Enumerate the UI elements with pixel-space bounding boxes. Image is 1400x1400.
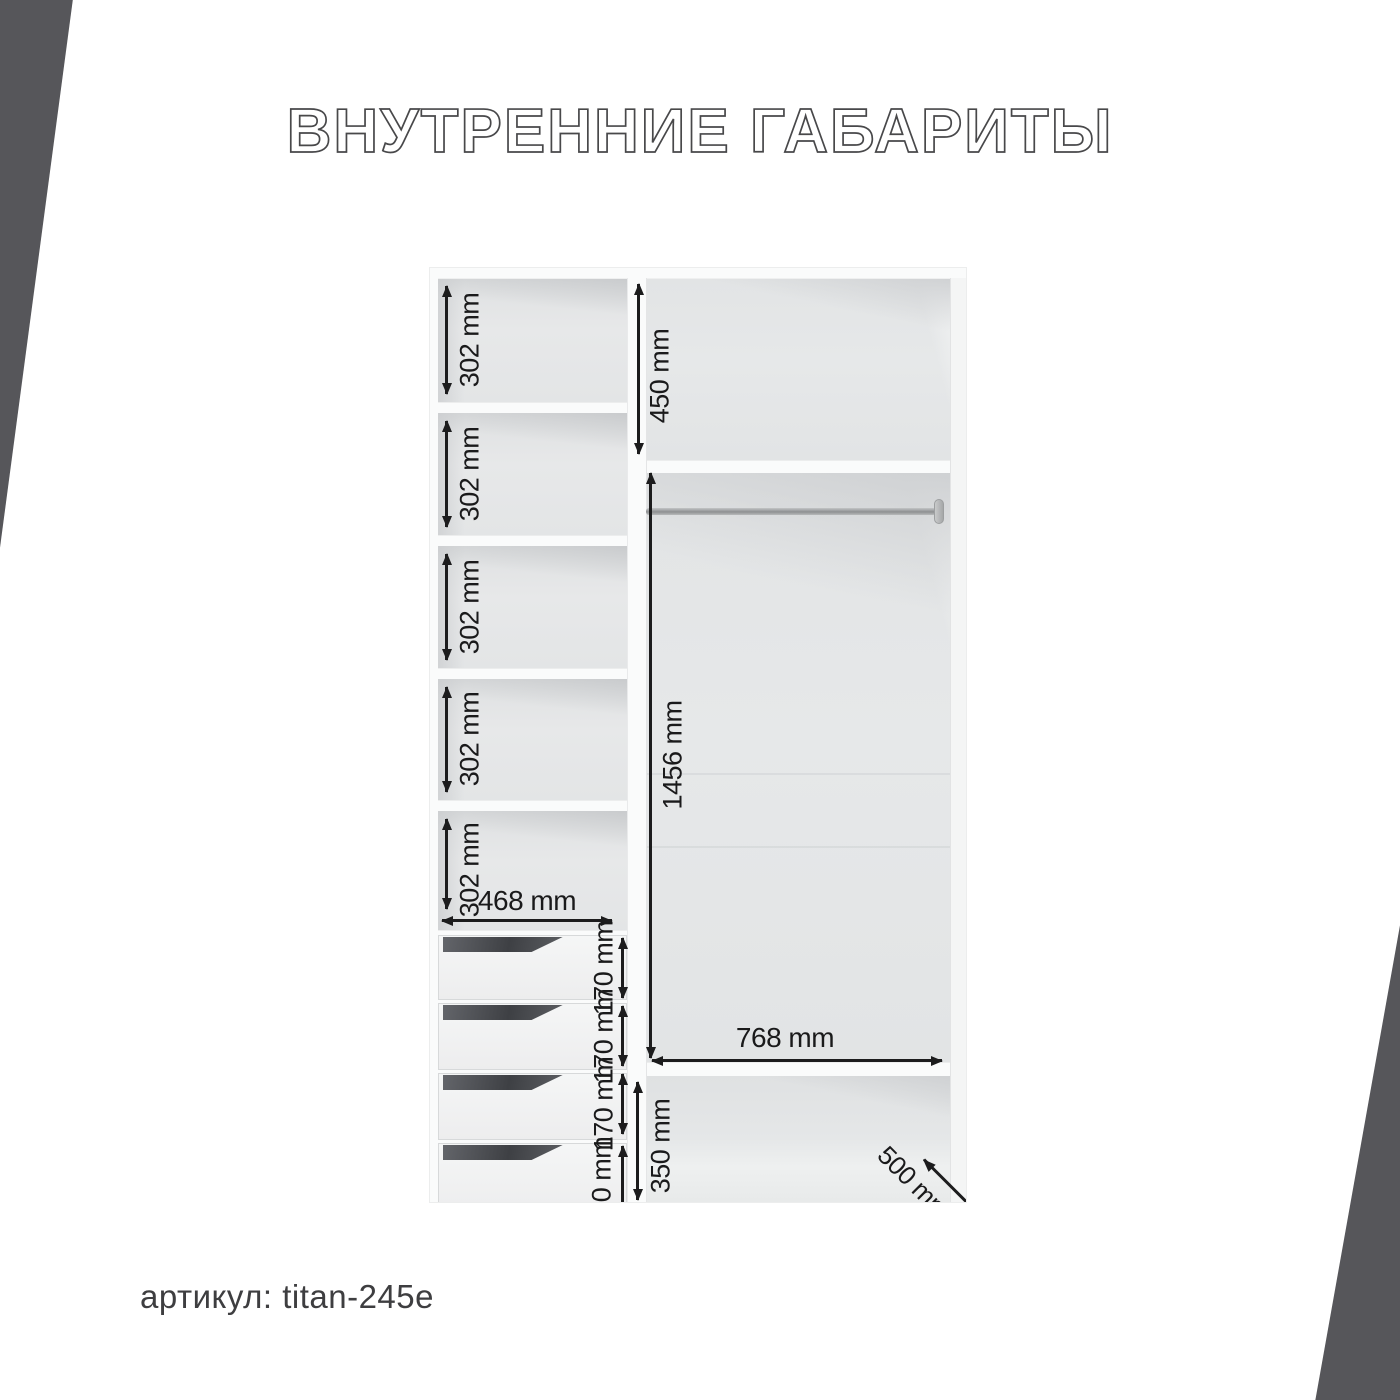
back-panel-seam-2	[645, 846, 950, 848]
dim-arrow-shelf-1	[445, 286, 448, 394]
dim-label-shelf-4: 302 mm	[455, 692, 486, 787]
dim-arrow-drawer-2	[621, 1006, 624, 1066]
dim-arrow-shelf-4	[445, 687, 448, 792]
dim-arrow-shelf-5	[445, 819, 448, 909]
dim-label-shelf-3: 302 mm	[455, 560, 486, 655]
dim-label-top-shelf: 450 mm	[645, 329, 676, 424]
dim-arrow-hanging-height	[649, 473, 652, 1058]
dim-label-shelf-2: 302 mm	[455, 427, 486, 522]
cabinet-right-panel	[950, 278, 966, 1202]
dim-arrow-shelf-3	[445, 554, 448, 660]
dim-arrow-drawer-4	[621, 1146, 624, 1202]
back-panel-seam-1	[645, 773, 950, 775]
hanging-compartment	[645, 473, 950, 1062]
bottom-right-accent-shape	[1308, 918, 1400, 1400]
top-left-accent-shape	[0, 0, 80, 556]
dim-arrow-top-shelf	[637, 284, 640, 454]
hanging-rod-end-cap	[934, 499, 944, 524]
dim-label-bottom-shelf: 350 mm	[646, 1099, 677, 1194]
dim-arrow-right-width	[652, 1059, 942, 1062]
drawer-4-handle-notch	[443, 1145, 563, 1160]
dim-label-hanging-height: 1456 mm	[658, 700, 689, 809]
dim-arrow-drawer-3	[621, 1074, 624, 1134]
article-code: артикул: titan-245e	[140, 1278, 434, 1316]
dim-arrow-shelf-2	[445, 421, 448, 527]
page-title: ВНУТРЕННИЕ ГАБАРИТЫ	[0, 96, 1400, 167]
dim-arrow-drawer-1	[621, 938, 624, 998]
hanging-rod	[646, 508, 936, 515]
cabinet-left-panel	[430, 278, 438, 1202]
cabinet-top-panel	[430, 268, 966, 279]
dim-label-drawer-4: 170 mm	[587, 1137, 618, 1202]
top-shelf-compartment	[645, 278, 950, 460]
drawer-3-handle-notch	[443, 1075, 563, 1090]
dim-arrow-left-width	[442, 919, 612, 922]
dim-label-left-width: 468 mm	[478, 885, 576, 917]
drawer-2-handle-notch	[443, 1005, 563, 1020]
dim-arrow-bottom-shelf	[636, 1082, 639, 1200]
drawer-1-handle-notch	[443, 937, 563, 952]
dim-label-shelf-1: 302 mm	[455, 293, 486, 388]
wardrobe-diagram: 302 mm 302 mm 302 mm 302 mm 302 mm 468 m…	[430, 268, 966, 1202]
dim-label-right-width: 768 mm	[736, 1022, 834, 1054]
